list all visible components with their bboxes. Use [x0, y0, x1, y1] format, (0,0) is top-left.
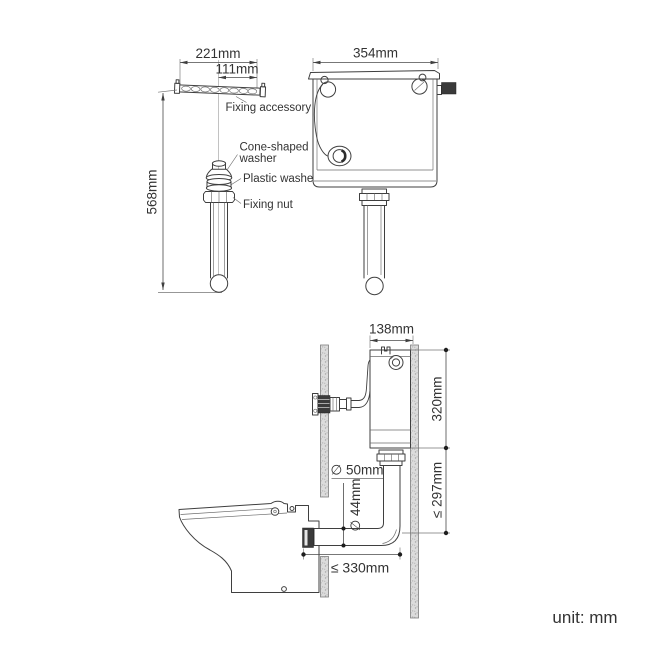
dim-297-label: ≤ 297mm: [430, 462, 445, 518]
seat-hinge: [271, 508, 279, 516]
bolt-left: [176, 80, 179, 84]
dim-50-label: ∅ 50mm: [330, 463, 383, 478]
dim-354: 354mm: [313, 46, 438, 72]
toilet-pan: [179, 501, 319, 592]
toilet-cistern-installation-diagram: 221mm 111mm: [0, 0, 650, 650]
dim-568-label: 568mm: [145, 169, 160, 214]
fixing-nut-label: Fixing nut: [243, 199, 294, 211]
pipe-opening: [212, 161, 225, 166]
front-pipe-end: [366, 277, 383, 294]
washer-stack: [204, 161, 235, 292]
side-connector: [437, 83, 456, 95]
dim-320-label: 320mm: [430, 376, 445, 421]
cone-washer-label-line1: Cone-shaped: [240, 142, 309, 154]
dim-111-label: 111mm: [215, 62, 258, 77]
fixing-bar: [174, 80, 265, 97]
unit-note: unit: mm: [552, 608, 617, 627]
cone-washer-label-line2: washer: [239, 153, 277, 165]
base-fixing-hole: [282, 587, 287, 592]
cistern-front-view: 354mm: [309, 46, 457, 295]
wall-left-upper: [321, 345, 329, 497]
dim-44-label: ∅ 44mm: [348, 478, 363, 531]
fixing-accessory-label: Fixing accessory: [226, 102, 312, 114]
wall-inlet-fitting: [313, 394, 360, 416]
pipe-end: [210, 275, 227, 292]
dim-138: 138mm: [369, 322, 414, 349]
installation-side-view: 138mm 320mm ≤ 297mm ∅ 50mm ∅ 44mm: [179, 322, 450, 619]
bar-end-cap-left: [174, 83, 179, 93]
dim-221-label: 221mm: [195, 46, 240, 61]
pan-outlet-spigot: [303, 528, 314, 548]
wall-right: [411, 345, 419, 618]
cistern-side-view: [370, 347, 411, 448]
bar-end-cap-right: [260, 87, 265, 97]
flush-button: [328, 146, 351, 166]
cistern-body: [313, 79, 437, 187]
fixing-accessory-view: 221mm 111mm: [145, 46, 318, 293]
wall-left-lower: [321, 557, 329, 598]
dim-138-label: 138mm: [369, 322, 414, 337]
dim-354-label: 354mm: [353, 46, 398, 61]
plastic-washer-label: Plastic washer: [243, 173, 317, 185]
dim-111: 111mm: [215, 62, 258, 80]
front-flush-pipe: [360, 189, 390, 295]
bolt-right: [262, 83, 265, 87]
diagram-canvas: 221mm 111mm: [0, 0, 650, 650]
inlet-valve-cap: [389, 356, 403, 370]
dim-50: ∅ 50mm: [330, 463, 383, 479]
dim-330-label: ≤ 330mm: [331, 560, 389, 576]
